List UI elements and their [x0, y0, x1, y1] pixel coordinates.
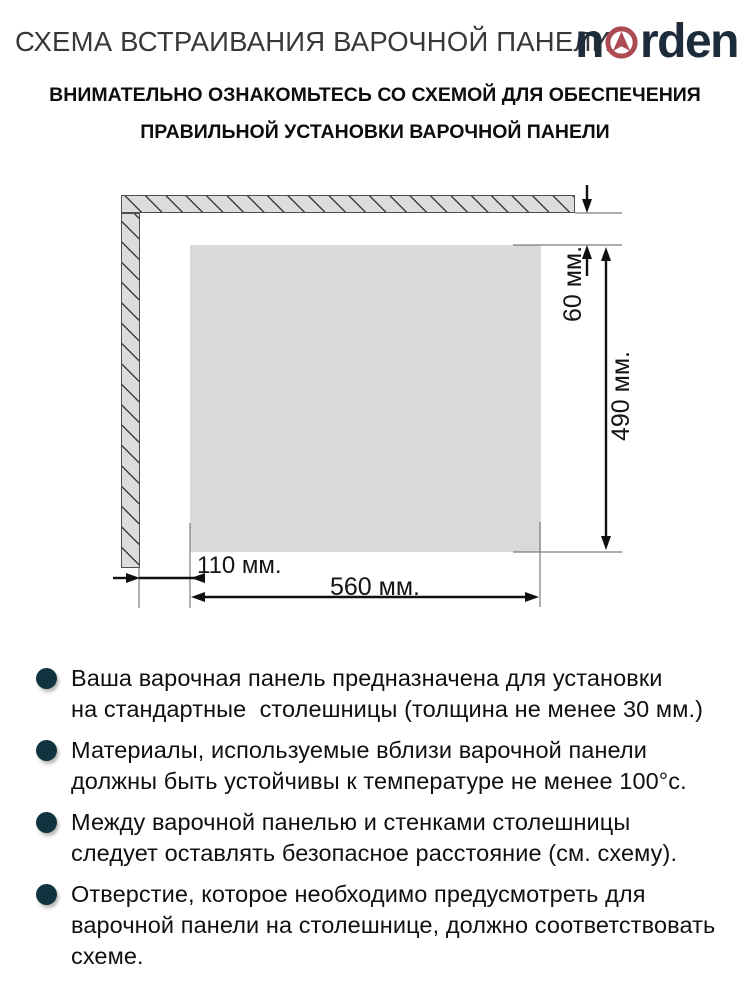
note-item: Материалы, используемые вблизи варочной … [36, 735, 736, 797]
dim-label-490mm: 490 мм. [608, 326, 634, 466]
note-text: Материалы, используемые вблизи варочной … [71, 735, 736, 797]
dimension-lines [0, 0, 750, 640]
dim-label-60mm: 60 мм. [560, 224, 586, 344]
arrow-110mm [113, 573, 205, 583]
bullet-dot-icon [36, 812, 57, 833]
extension-lines [139, 213, 622, 608]
note-text: Между варочной панелью и стенками столеш… [71, 807, 736, 869]
note-item: Ваша варочная панель предназначена для у… [36, 663, 736, 725]
note-text: Ваша варочная панель предназначена для у… [71, 663, 736, 725]
installation-diagram: 60 мм. 490 мм. 110 мм. 560 мм. [0, 0, 750, 640]
note-text: Отверстие, которое необходимо предусмотр… [71, 879, 736, 972]
bullet-dot-icon [36, 668, 57, 689]
notes-list: Ваша варочная панель предназначена для у… [36, 663, 736, 982]
dim-label-560mm: 560 мм. [239, 573, 511, 602]
bullet-dot-icon [36, 740, 57, 761]
note-item: Отверстие, которое необходимо предусмотр… [36, 879, 736, 972]
page: СХЕМА ВСТРАИВАНИЯ ВАРОЧНОЙ ПАНЕЛИ n rden… [0, 0, 750, 1000]
bullet-dot-icon [36, 884, 57, 905]
note-item: Между варочной панелью и стенками столеш… [36, 807, 736, 869]
